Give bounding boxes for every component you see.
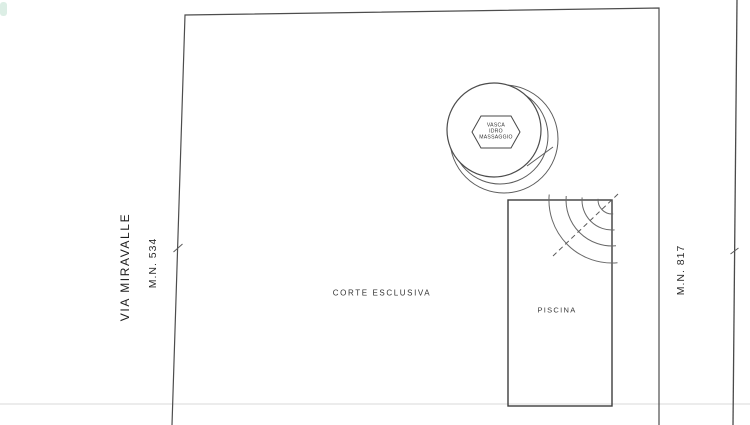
- pool-label: PISCINA: [537, 306, 576, 315]
- hot-tub-label: VASCA IDRO MASSAGGIO: [479, 123, 512, 141]
- site-plan-drawing: [0, 0, 750, 425]
- parcel-number-left-label: M.N. 534: [147, 238, 159, 289]
- pool-diagonal-dashed-line: [553, 194, 618, 256]
- parcel-number-right-label: M.N. 817: [675, 245, 687, 296]
- courtyard-label: CORTE ESCLUSIVA: [333, 289, 431, 298]
- page-edge-line: [733, 0, 737, 425]
- plot-boundary-line: [172, 8, 659, 425]
- cadastral-site-plan: VIA MIRAVALLE M.N. 534 M.N. 817 CORTE ES…: [0, 0, 750, 425]
- pool-outline: [508, 200, 612, 406]
- scan-smudge: [0, 2, 7, 16]
- pool-step-arc-4: [549, 195, 618, 264]
- street-name-label: VIA MIRAVALLE: [118, 213, 132, 321]
